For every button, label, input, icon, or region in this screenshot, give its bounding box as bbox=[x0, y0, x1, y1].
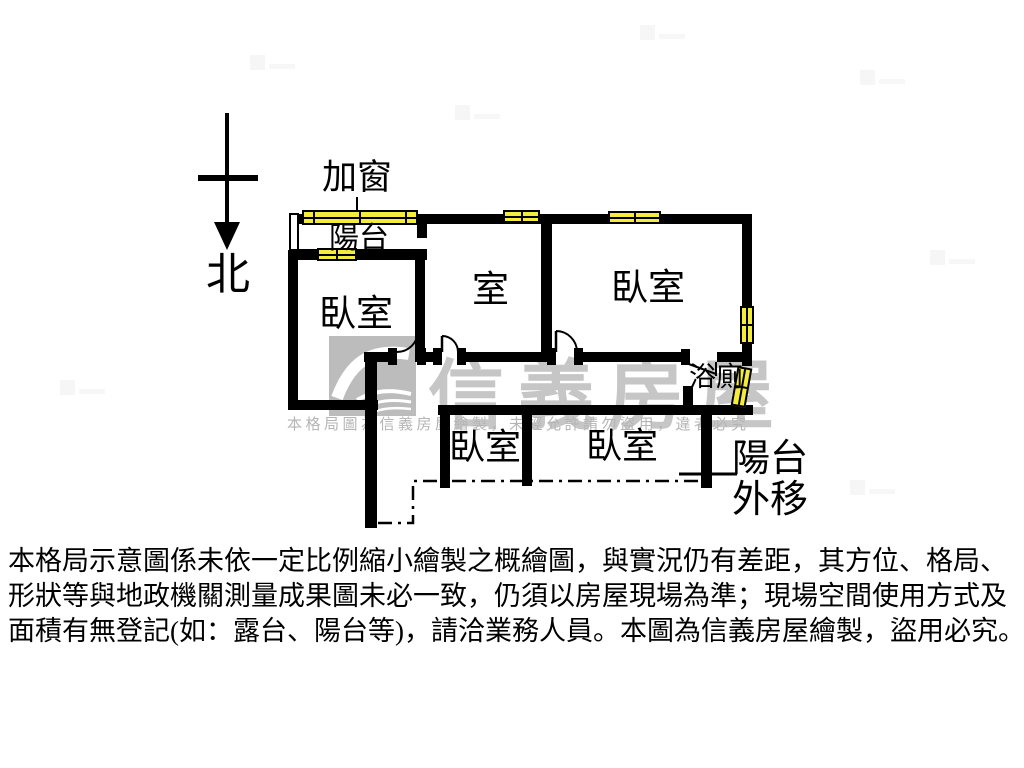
balcony-extended-label-line2: 外移 bbox=[732, 481, 808, 521]
window-divider bbox=[405, 212, 407, 223]
wall-mid-segment bbox=[426, 352, 433, 362]
disclaimer-line-3: 面積有無登記(如：露台、陽台等)，請洽業務人員。本圖為信義房屋繪製，盜用必究。 bbox=[8, 614, 1022, 649]
wall-lower-bedroom-middle bbox=[522, 405, 532, 486]
wall-lower-bedroom-right bbox=[701, 405, 712, 488]
add-window-label: 加窗 bbox=[322, 160, 392, 197]
wall-balcony-stub bbox=[417, 224, 427, 238]
wall-bedroom-left-right bbox=[415, 250, 425, 362]
wall-middle-room-right bbox=[541, 214, 552, 362]
disclaimer-line-2: 形狀等與地政機關測量成果圖未必一致，仍須以房屋現場為準；現場空間使用方式及 bbox=[8, 579, 1022, 614]
bedroom-lower-right-label: 臥室 bbox=[586, 428, 658, 466]
door-swing-arc bbox=[442, 336, 458, 352]
door-post bbox=[417, 348, 426, 365]
former-balcony-dashdot-line bbox=[378, 481, 712, 523]
disclaimer-line-1: 本格局示意圖係未依一定比例縮小繪製之概繪圖，與實況仍有差距，其方位、格局、 bbox=[8, 544, 1022, 579]
window-top-right bbox=[608, 211, 661, 224]
window-divider bbox=[746, 308, 748, 342]
window-divider bbox=[313, 212, 315, 223]
door-post bbox=[388, 348, 397, 365]
door-post bbox=[433, 348, 442, 365]
window-divider bbox=[521, 212, 523, 221]
door-post bbox=[457, 348, 466, 365]
door-post bbox=[547, 348, 556, 365]
wall-lower-left-vertical bbox=[365, 352, 377, 528]
bedroom-left-label: 臥室 bbox=[319, 296, 393, 335]
north-arrow-head bbox=[214, 222, 240, 250]
bathroom-label: 浴廁 bbox=[689, 363, 743, 391]
middle-room-label: 室 bbox=[472, 272, 509, 311]
floorplan-page: 信義房屋 本格局圖為信義房屋繪製，未經允許請勿盜用，違者必究 bbox=[0, 0, 1024, 768]
bedroom-lower-left-label: 臥室 bbox=[449, 429, 521, 467]
north-label: 北 bbox=[206, 252, 250, 298]
balcony-extended-label-line1: 陽台 bbox=[732, 440, 808, 480]
plan-line-layer bbox=[0, 0, 1024, 768]
window-right-wall bbox=[740, 306, 754, 344]
bedroom-right-label: 臥室 bbox=[611, 270, 685, 309]
wall-mid-segment bbox=[466, 352, 547, 362]
window-top-middle bbox=[503, 210, 540, 223]
balcony-label: 陽台 bbox=[329, 223, 389, 255]
window-divider bbox=[634, 213, 636, 222]
wall-mid-segment bbox=[583, 352, 681, 362]
wall-left bbox=[288, 250, 298, 410]
door-post bbox=[574, 348, 583, 365]
